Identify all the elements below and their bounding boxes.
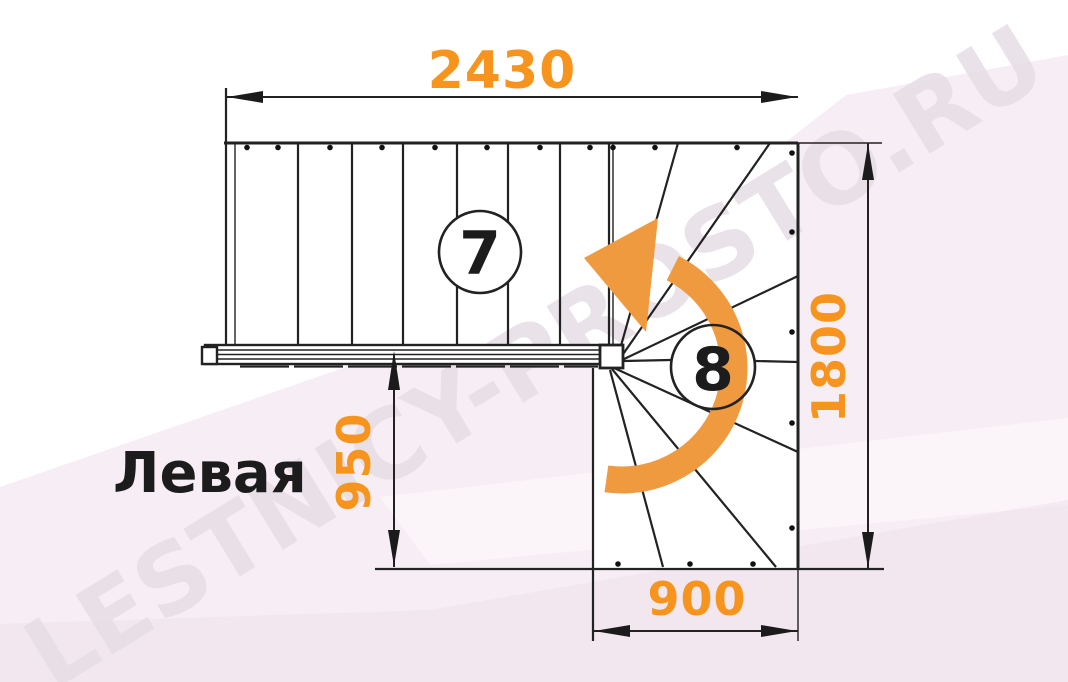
winder-tread-edge <box>755 361 798 362</box>
staircase-plan-svg: LESTNICY-PROSTO.RU <box>0 0 1068 682</box>
dimension-right-value: 1800 <box>802 291 856 423</box>
dimension-top-value: 2430 <box>428 41 577 101</box>
newel-post-left <box>202 347 217 364</box>
flight-marker-7: 7 <box>439 211 521 293</box>
plan-title: Левая <box>113 441 307 506</box>
staircase-plan-drawing: LESTNICY-PROSTO.RU <box>0 0 1068 682</box>
marker-7-label: 7 <box>459 219 501 289</box>
winder-tread-edge <box>623 360 671 361</box>
stringer-beam <box>202 345 605 367</box>
marker-8-label: 8 <box>692 335 734 405</box>
dimension-top: 2430 <box>226 41 798 103</box>
dimension-bottom-value: 900 <box>647 572 746 626</box>
dimension-left-value: 950 <box>327 412 381 511</box>
center-post <box>600 345 623 368</box>
